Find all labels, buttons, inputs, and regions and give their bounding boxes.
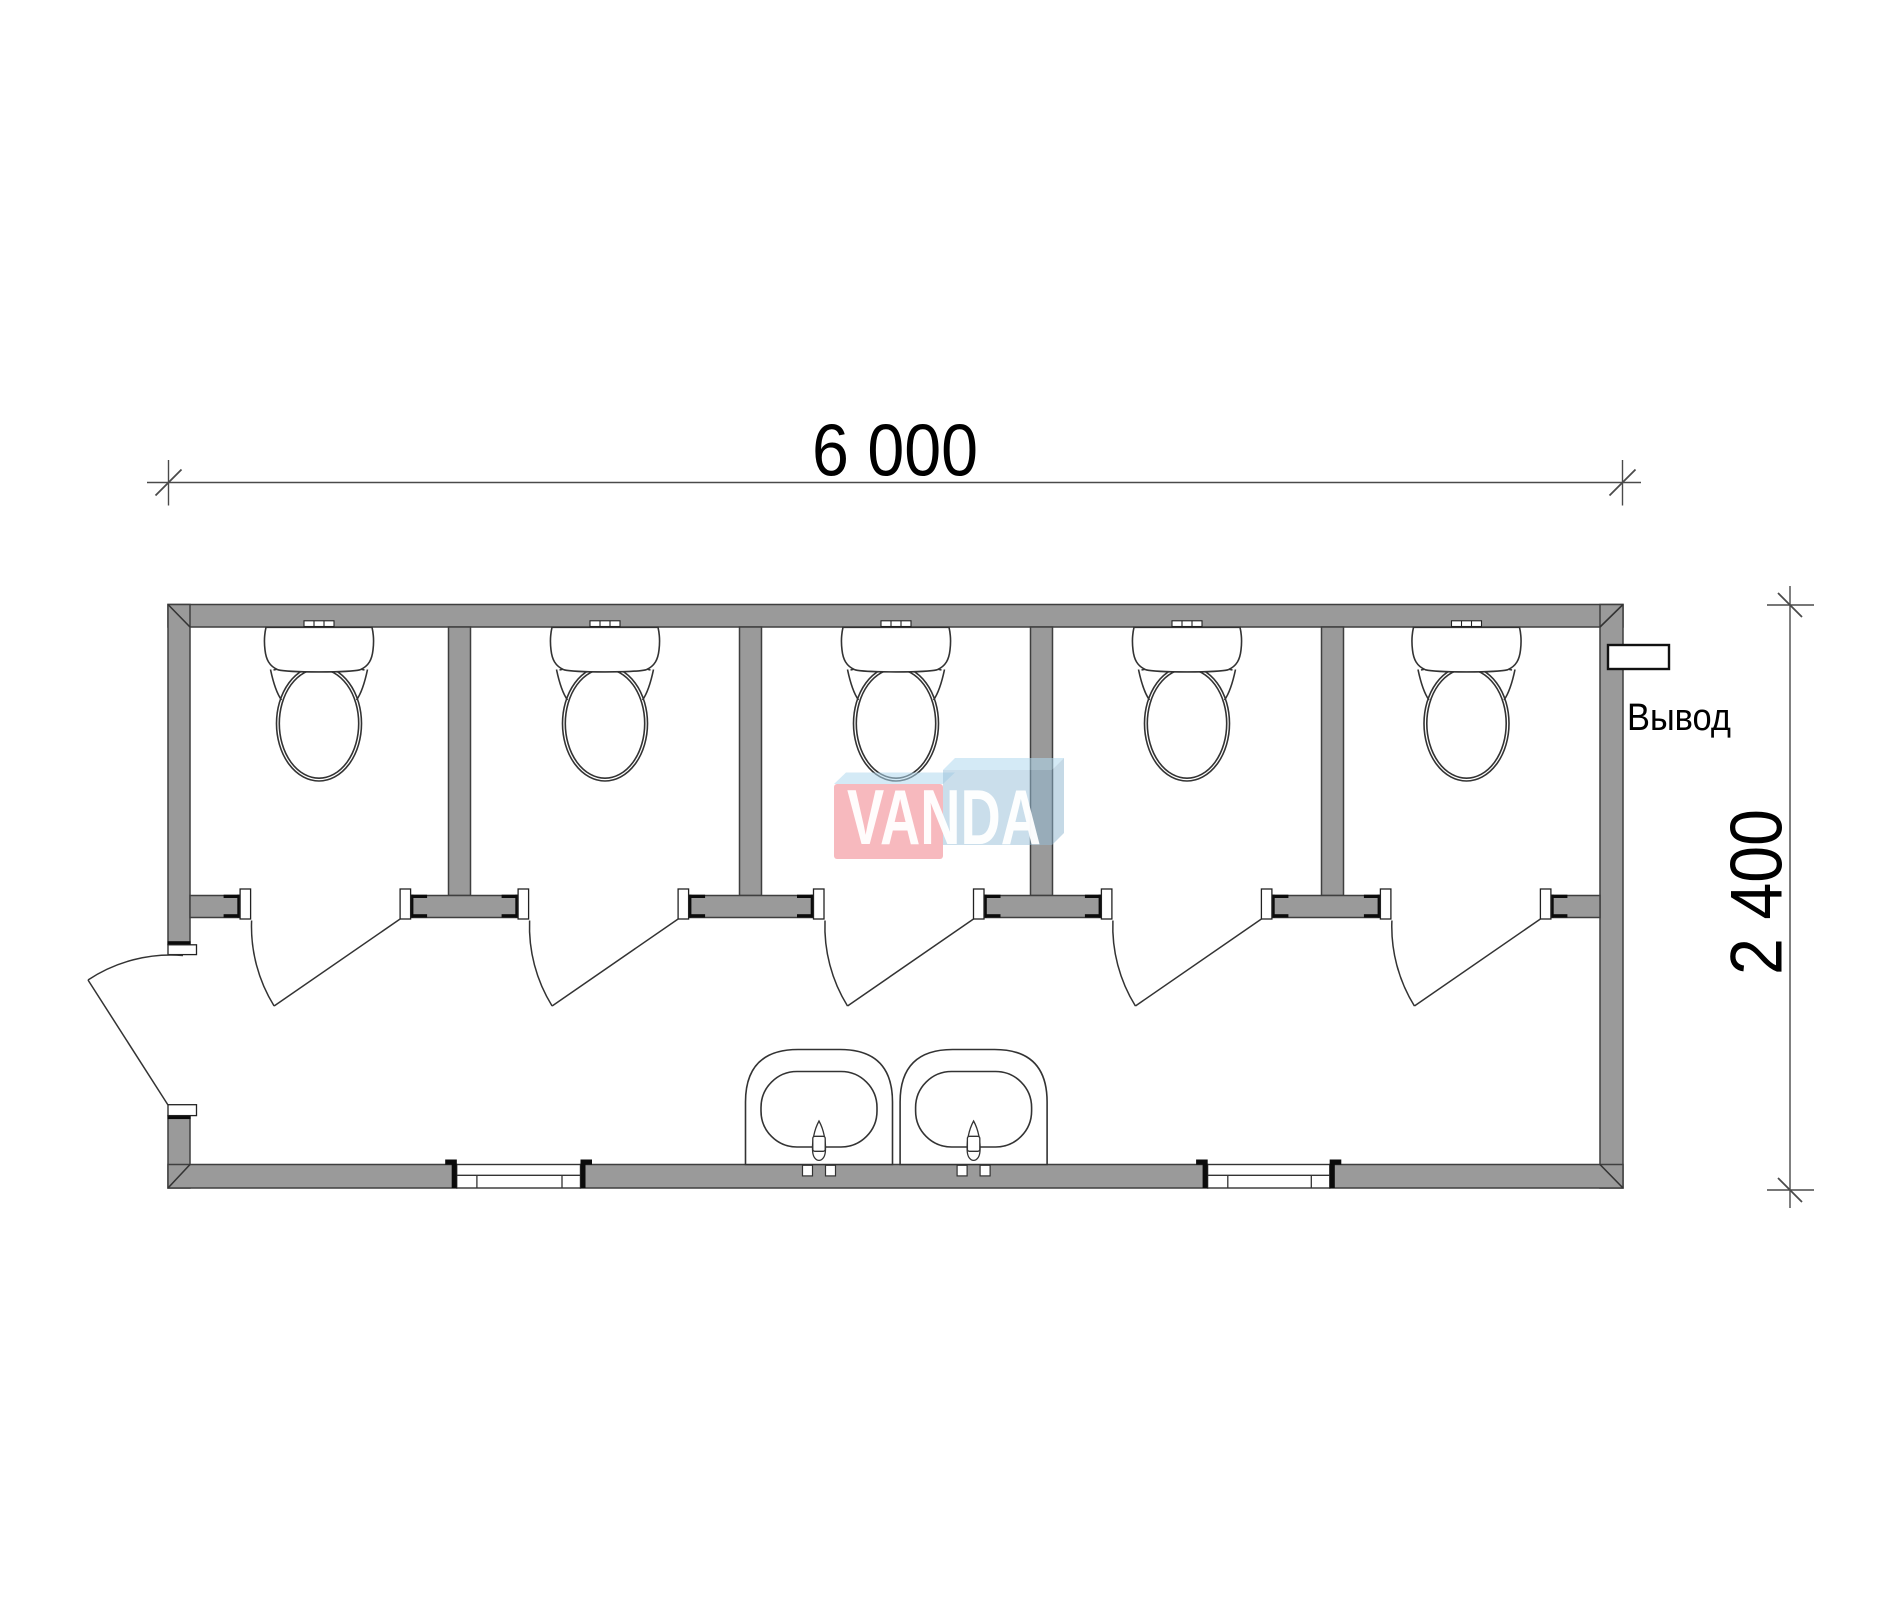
svg-text:6 000: 6 000 — [812, 411, 978, 492]
svg-text:VANDA: VANDA — [847, 773, 1041, 861]
svg-text:Вывод: Вывод — [1627, 697, 1731, 739]
svg-text:2 400: 2 400 — [1717, 809, 1798, 975]
